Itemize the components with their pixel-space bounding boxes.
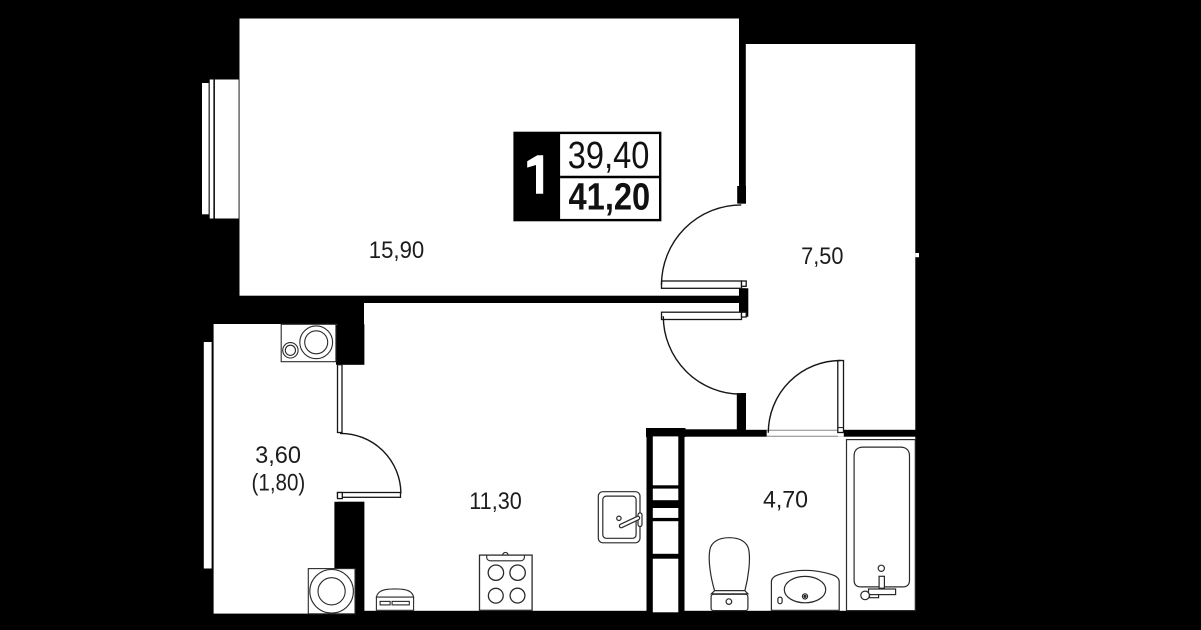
svg-text:4,70: 4,70 bbox=[763, 486, 808, 513]
svg-text:7,50: 7,50 bbox=[801, 243, 843, 270]
svg-text:39,40: 39,40 bbox=[568, 135, 650, 177]
svg-text:41,20: 41,20 bbox=[569, 177, 651, 219]
svg-text:3,60: 3,60 bbox=[255, 442, 301, 469]
svg-text:11,30: 11,30 bbox=[469, 488, 522, 515]
svg-text:(1,80): (1,80) bbox=[252, 470, 306, 497]
svg-text:15,90: 15,90 bbox=[369, 237, 424, 264]
